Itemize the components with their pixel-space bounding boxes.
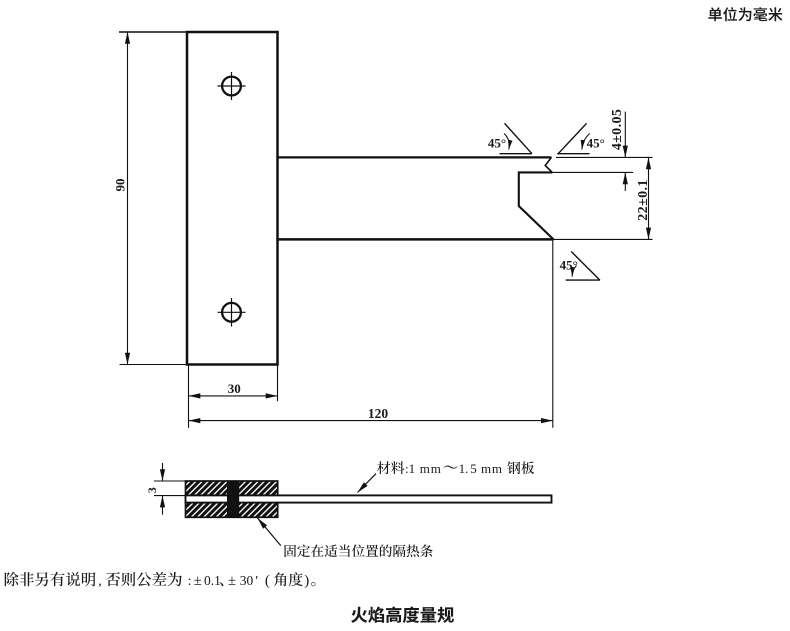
svg-text:120: 120 — [368, 406, 389, 421]
svg-text:45°: 45° — [587, 136, 605, 151]
svg-text:±: ± — [194, 573, 202, 589]
svg-text:0.1: 0.1 — [204, 573, 221, 588]
svg-text:30: 30 — [228, 381, 241, 396]
svg-text:): ) — [304, 573, 309, 589]
svg-text:′: ′ — [255, 574, 258, 589]
svg-text::1: :1 — [405, 461, 415, 476]
svg-text::: : — [188, 574, 192, 589]
svg-text:4±0.05: 4±0.05 — [610, 109, 625, 151]
svg-text:22±0.1: 22±0.1 — [636, 179, 651, 221]
svg-text:1.: 1. — [459, 461, 469, 476]
svg-text:45°: 45° — [560, 258, 578, 273]
svg-text:45°: 45° — [488, 136, 506, 151]
svg-text:5: 5 — [470, 461, 477, 476]
svg-text:±: ± — [228, 573, 236, 589]
svg-text:3: 3 — [145, 487, 159, 493]
svg-text:mm: mm — [481, 461, 503, 476]
svg-text:90: 90 — [113, 179, 128, 192]
svg-text:(: ( — [265, 573, 270, 589]
svg-text:mm: mm — [420, 461, 442, 476]
svg-text:30: 30 — [240, 573, 254, 588]
svg-text:,: , — [98, 574, 102, 589]
